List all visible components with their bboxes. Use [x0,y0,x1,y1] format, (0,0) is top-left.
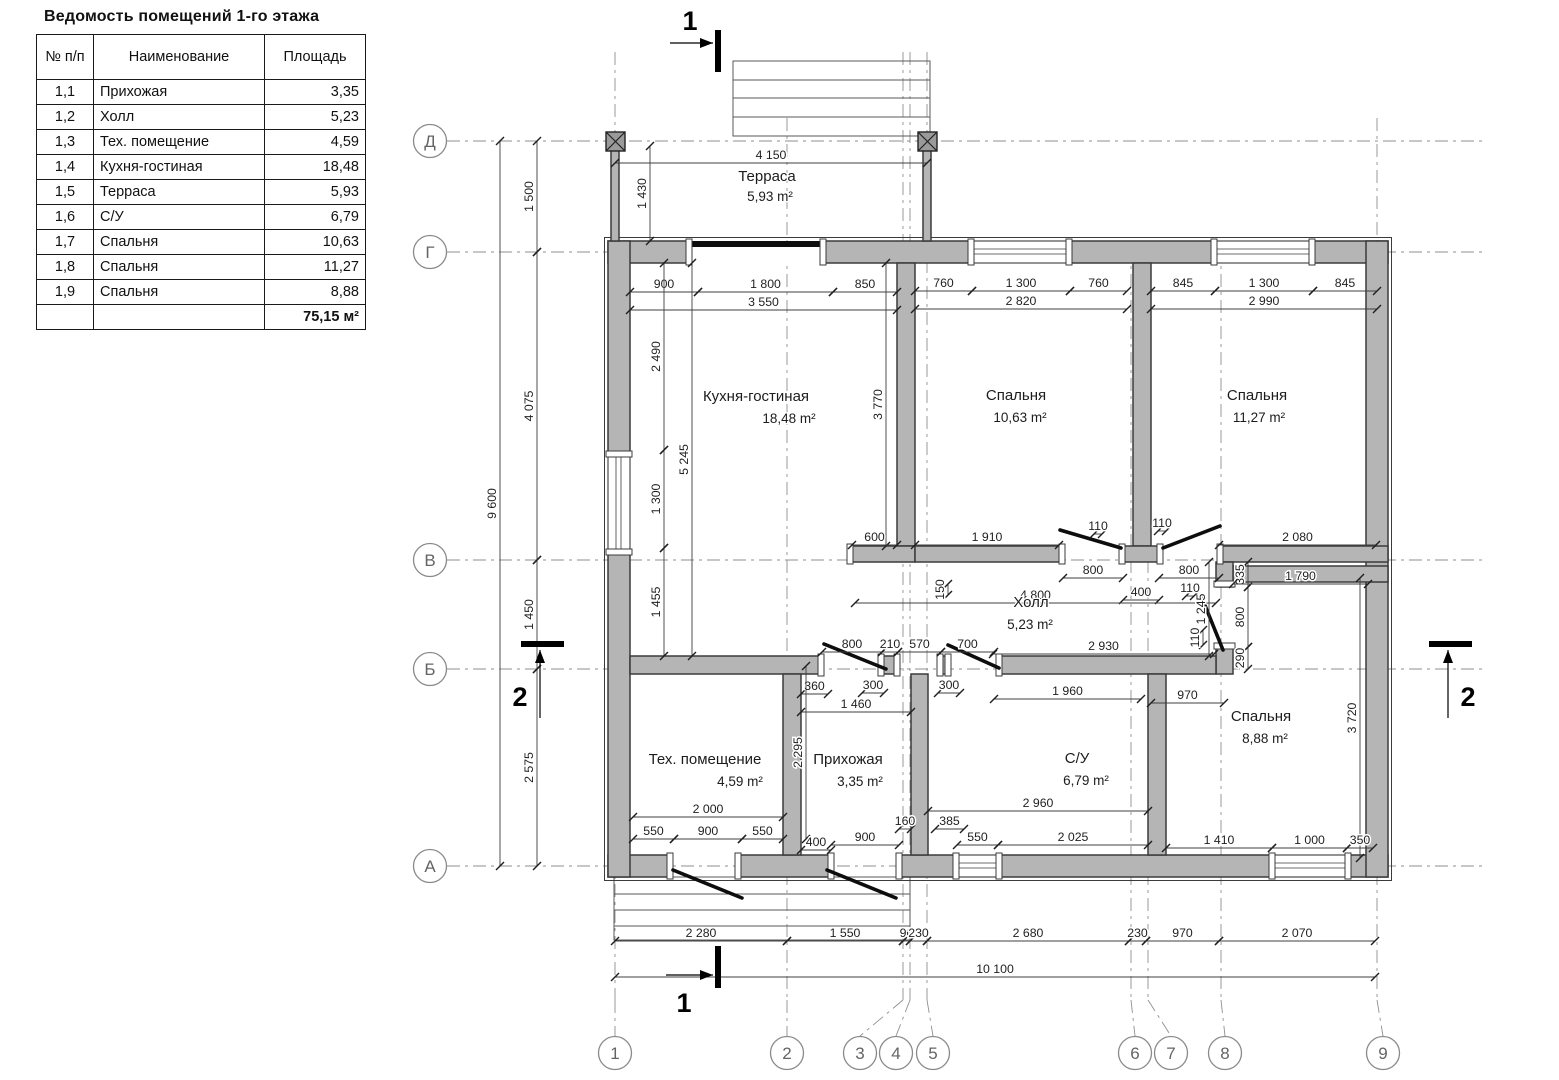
room-label-kitchen-living: Кухня-гостиная [703,388,809,405]
dim-label: 9 600 [485,488,499,519]
dim-label: 360 [804,679,825,693]
dim-label: 1 800 [750,277,781,291]
wall [998,855,1272,877]
wall [850,546,915,562]
table-row: 1,5Терраса5,93 [37,180,366,205]
dim-label: 2 000 [693,802,724,816]
dim-label: 1 500 [522,181,536,212]
axis-bubble-label-6: 6 [1130,1044,1139,1063]
dim-label: 300 [939,678,960,692]
wall [897,263,915,546]
dim-label: 5 245 [677,444,691,475]
dim-label: 110 [1188,628,1202,648]
section-mark-bar [715,30,721,72]
axis-bubble-label-5: 5 [928,1044,937,1063]
door-jamb [996,853,1002,879]
room-area-kitchen-living: 18,48 m² [762,411,816,426]
dim-label: 2 960 [1023,796,1054,810]
room-area-bedroom-3: 8,88 m² [1242,731,1288,746]
table-row: 1,2Холл5,23 [37,105,366,130]
table-row: 1,8Спальня11,27 [37,255,366,280]
dim-label: 845 [1335,276,1356,290]
dim-label: 570 [909,637,930,651]
dim-label: 2 070 [1282,926,1313,940]
dim-label: 1 000 [1294,833,1325,847]
door-jamb [606,451,632,457]
dim-label: 1 960 [1052,684,1083,698]
dim-label: 110 [1180,581,1200,595]
table-cell-num: 1,7 [37,230,94,255]
table-row: 1,9Спальня8,88 [37,280,366,305]
door-jamb [686,239,692,265]
axis-bubble-label-4: 4 [891,1044,900,1063]
dim-label: 800 [842,637,863,651]
dim-label: 110 [1088,519,1108,533]
dim-label: 760 [933,276,954,290]
dim-label: 1 460 [841,697,872,711]
door-jamb [606,549,632,555]
section-mark-arrow [1443,650,1453,663]
axis-bubble-label-2: 2 [782,1044,791,1063]
section-mark-number: 1 [682,6,697,36]
door-jamb [735,853,741,879]
table-cell-name: Терраса [94,180,265,205]
dim-label: 1 450 [522,599,536,630]
dim-label: 230 [908,926,929,940]
wall [1133,263,1151,546]
room-schedule: Ведомость помещений 1-го этажа № п/п Наи… [36,8,348,330]
wall [915,546,1063,562]
table-cell-area: 5,23 [265,105,366,130]
schedule-header-area: Площадь [265,35,366,80]
axis-bubble-label-1: 1 [610,1044,619,1063]
room-area-bedroom-2: 11,27 m² [1233,410,1286,425]
axis-bubble-label-8: 8 [1220,1044,1229,1063]
floor-plan-sheet: 9 6001 5004 0751 4502 5754 1501 4309001 … [0,0,1559,1080]
axis-leader-7 [1148,1000,1171,1036]
dim-label: 850 [855,277,876,291]
axis-bubble-label-7: 7 [1166,1044,1175,1063]
axis-grid-lines [447,52,1483,1036]
table-cell-area: 8,88 [265,280,366,305]
room-area-tech-room: 4,59 m² [717,774,763,789]
dim-label: 10 100 [976,962,1014,976]
table-cell-empty [94,305,265,330]
table-row: 1,7Спальня10,63 [37,230,366,255]
dim-label: 2 280 [686,926,717,940]
door-jamb [1059,544,1065,564]
wall [1070,241,1215,263]
table-cell-num: 1,4 [37,155,94,180]
wall [1221,546,1388,562]
room-label-bedroom-1: Спальня [986,387,1046,404]
dim-label: 300 [863,678,884,692]
schedule-table: № п/п Наименование Площадь 1,1Прихожая3,… [36,34,366,330]
dim-label: 1 300 [1006,276,1037,290]
window [972,241,1070,263]
door-jamb [968,239,974,265]
dim-label: 1 455 [649,586,663,617]
section-mark-number: 1 [676,988,691,1018]
door-jamb [1066,239,1072,265]
schedule-header-num: № п/п [37,35,94,80]
door-jamb [996,654,1002,676]
dim-label: 1 550 [830,926,861,940]
dim-label: 2 990 [1249,294,1280,308]
table-total-row: 75,15 м² [37,305,366,330]
table-row: 1,3Тех. помещение4,59 [37,130,366,155]
dim-label: 2 820 [1006,294,1037,308]
schedule-header-row: № п/п Наименование Площадь [37,35,366,80]
wall [1123,546,1161,562]
axis-bubble-label-9: 9 [1378,1044,1387,1063]
table-cell-num: 1,8 [37,255,94,280]
door-jamb [820,239,826,265]
door-jamb [1309,239,1315,265]
axis-bubble-label-Б: Б [424,660,435,679]
table-cell-name: Спальня [94,280,265,305]
section-mark-bar [715,946,721,988]
table-cell-area: 10,63 [265,230,366,255]
table-cell-name: Тех. помещение [94,130,265,155]
table-cell-num: 1,3 [37,130,94,155]
dim-label: 2 080 [1282,530,1313,544]
dim-label: 1 300 [1249,276,1280,290]
table-cell-name: Кухня-гостиная [94,155,265,180]
door-jamb [894,654,900,676]
dim-label: 1 245 [1194,593,1208,624]
dim-label: 970 [1177,688,1198,702]
dim-label: 970 [1172,926,1193,940]
table-cell-num: 1,1 [37,80,94,105]
table-cell-name: С/У [94,205,265,230]
section-mark-number: 2 [512,682,527,712]
dim-label: 160 [895,814,916,828]
axis-bubble-label-В: В [424,551,435,570]
table-cell-num: 1,5 [37,180,94,205]
dim-label: 550 [752,824,773,838]
axis-bubble-label-3: 3 [855,1044,864,1063]
table-row: 1,6С/У6,79 [37,205,366,230]
door-jamb [896,853,902,879]
axis-leader-8 [1221,1000,1225,1036]
dim-label: 350 [1350,833,1371,847]
room-label-hall: Холл [1013,594,1048,611]
axis-leader-6 [1131,1000,1135,1036]
dim-label: 2 025 [1058,830,1089,844]
table-cell-name: Прихожая [94,80,265,105]
dim-label: 110 [1152,516,1172,530]
dim-label: 2 680 [1013,926,1044,940]
axis-leader-9 [1377,1000,1383,1036]
terrace-door-gap [690,247,823,263]
axis-leader-5 [927,1000,933,1036]
axis-bubble-label-А: А [424,857,436,876]
dim-label: 550 [643,824,664,838]
table-cell-name: Спальня [94,255,265,280]
dim-label: 400 [806,835,827,849]
room-label-wc: С/У [1065,750,1090,767]
terrace-door-icon [690,241,823,247]
dim-label: 2 930 [1088,639,1119,653]
dim-label: 400 [1131,585,1152,599]
table-cell-area: 6,79 [265,205,366,230]
table-cell-area: 3,35 [265,80,366,105]
dim-label: 230 [1127,926,1148,940]
dim-label: 1 910 [972,530,1003,544]
dim-label: 1 430 [635,178,649,209]
dim-label: 800 [1233,607,1247,628]
dim-label: 900 [855,830,876,844]
dim-label: 845 [1173,276,1194,290]
room-label-entry: Прихожая [813,751,883,768]
section-mark-bar [1429,641,1472,647]
door-jamb [1345,853,1351,879]
dim-label: 1 300 [649,483,663,514]
wall [608,553,630,877]
dim-label: 550 [967,830,988,844]
table-cell-num: 1,2 [37,105,94,130]
door-jamb [945,654,951,676]
dim-label: 1 790 [1285,569,1316,583]
door-jamb [1211,239,1217,265]
window [608,455,630,553]
wall [899,855,957,877]
dim-label: 600 [864,530,885,544]
wall [739,855,831,877]
dim-label: 800 [1179,563,1200,577]
dim-label: 385 [939,814,960,828]
room-area-hall: 5,23 m² [1007,617,1053,632]
axis-bubble-label-Д: Д [424,132,436,151]
wall [608,241,630,455]
table-cell-area: 4,59 [265,130,366,155]
schedule-title: Ведомость помещений 1-го этажа [44,8,340,26]
table-cell-area: 11,27 [265,255,366,280]
dim-label: 4 075 [522,390,536,421]
dim-label: 2 575 [522,752,536,783]
dim-label: 290 [1233,648,1247,669]
wall [999,656,1216,674]
table-cell-num: 1,9 [37,280,94,305]
axis-leader-3 [860,1000,903,1036]
dim-label: 150 [933,579,947,600]
axis-bubble-label-Г: Г [425,243,434,262]
room-label-tech-room: Тех. помещение [649,751,762,768]
dim-label: 800 [1083,563,1104,577]
section-mark-arrow [700,38,713,48]
table-cell-num: 1,6 [37,205,94,230]
window [1272,855,1347,877]
door-leaves [673,526,1223,898]
room-area-bedroom-1: 10,63 m² [993,410,1047,425]
dim-label: 2 490 [649,341,663,372]
dim-label: 210 [880,637,901,651]
dim-label: 3 720 [1345,702,1359,733]
wall [1148,674,1166,855]
window [1215,241,1313,263]
table-cell-name: Холл [94,105,265,130]
dim-label: 700 [957,637,978,651]
wall [823,241,972,263]
dim-label: 2 295 [791,737,805,768]
dim-label: 3 770 [871,389,885,420]
room-area-wc: 6,79 m² [1063,773,1109,788]
door-jamb [1214,643,1235,649]
section-mark-arrow [535,650,545,663]
table-cell-area: 5,93 [265,180,366,205]
door-jamb [1269,853,1275,879]
section-mark-number: 2 [1460,682,1475,712]
dim-label: 900 [698,824,719,838]
schedule-header-name: Наименование [94,35,265,80]
section-mark-bar [521,641,564,647]
room-label-bedroom-2: Спальня [1227,387,1287,404]
window [957,855,998,877]
dim-label: 1 410 [1204,833,1235,847]
door-jamb [828,853,834,879]
dim-label: 3 550 [748,295,779,309]
room-label-bedroom-3: Спальня [1231,708,1291,725]
table-cell-name: Спальня [94,230,265,255]
door-jamb [818,654,824,676]
dim-label: 4 150 [756,148,787,162]
door-jamb [953,853,959,879]
dim-label: 760 [1088,276,1109,290]
section-mark-arrow [700,970,713,980]
table-cell-area: 18,48 [265,155,366,180]
table-cell-empty [37,305,94,330]
table-total-area: 75,15 м² [265,305,366,330]
door-jamb [937,654,943,676]
table-row: 1,1Прихожая3,35 [37,80,366,105]
room-area-entry: 3,35 m² [837,774,883,789]
wall [630,656,822,674]
axis-leader-4 [896,1000,910,1036]
room-label-terrace: Терраса [738,168,796,185]
door-jamb [667,853,673,879]
room-area-terrace: 5,93 m² [747,189,793,204]
table-row: 1,4Кухня-гостиная18,48 [37,155,366,180]
